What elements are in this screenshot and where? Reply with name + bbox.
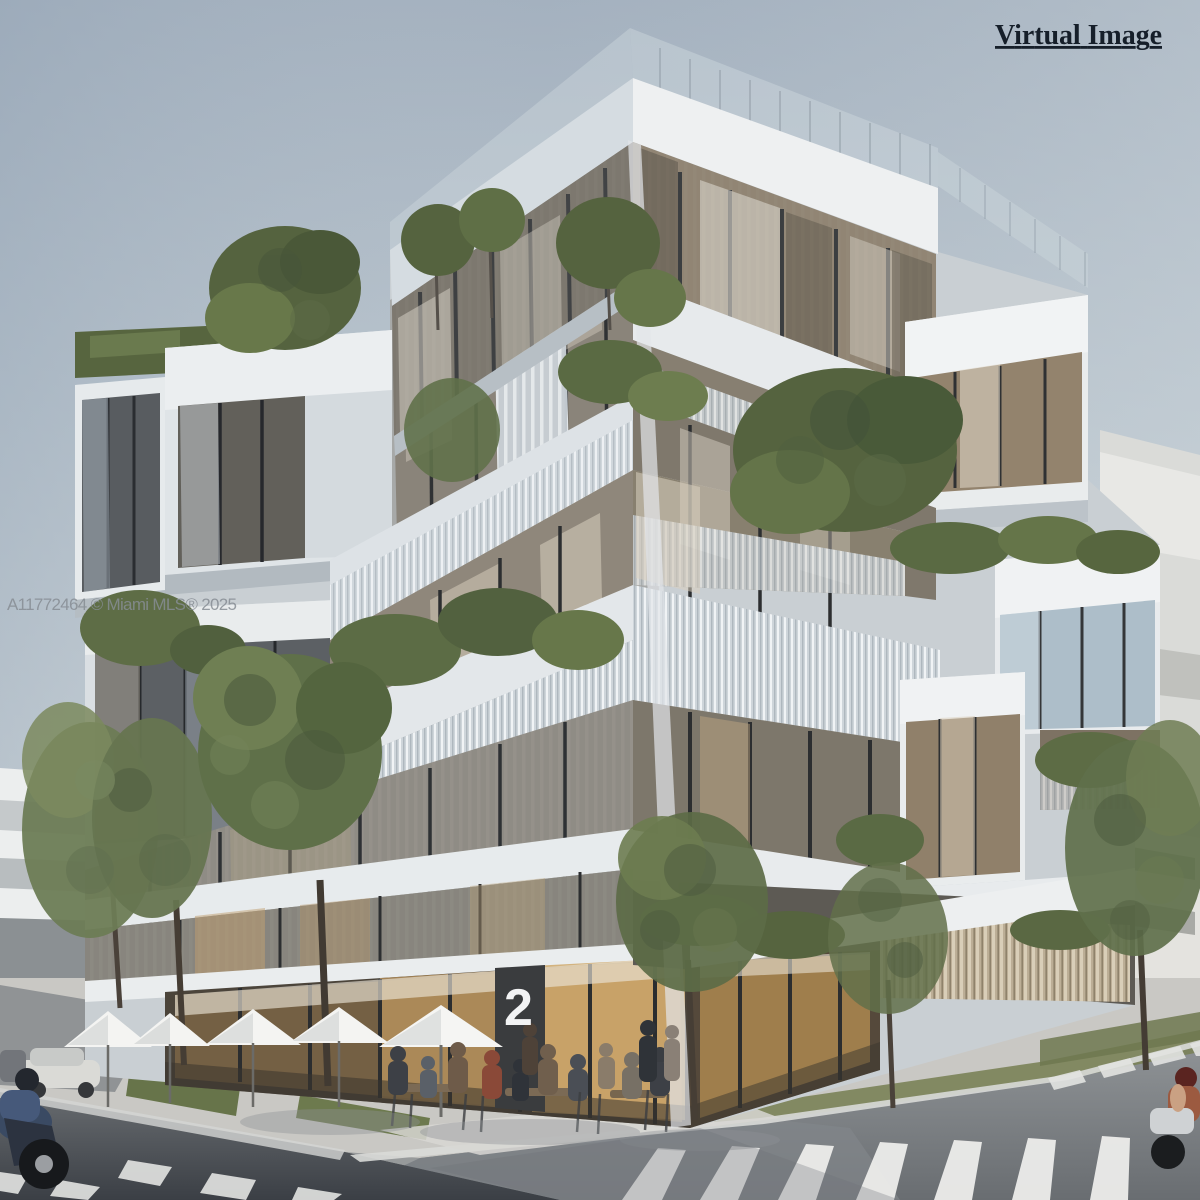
svg-text:2: 2 — [504, 979, 533, 1037]
svg-text:Virtual Image: Virtual Image — [995, 20, 1162, 51]
svg-text:A11772464 © Miami MLS® 2025: A11772464 © Miami MLS® 2025 — [7, 595, 237, 614]
